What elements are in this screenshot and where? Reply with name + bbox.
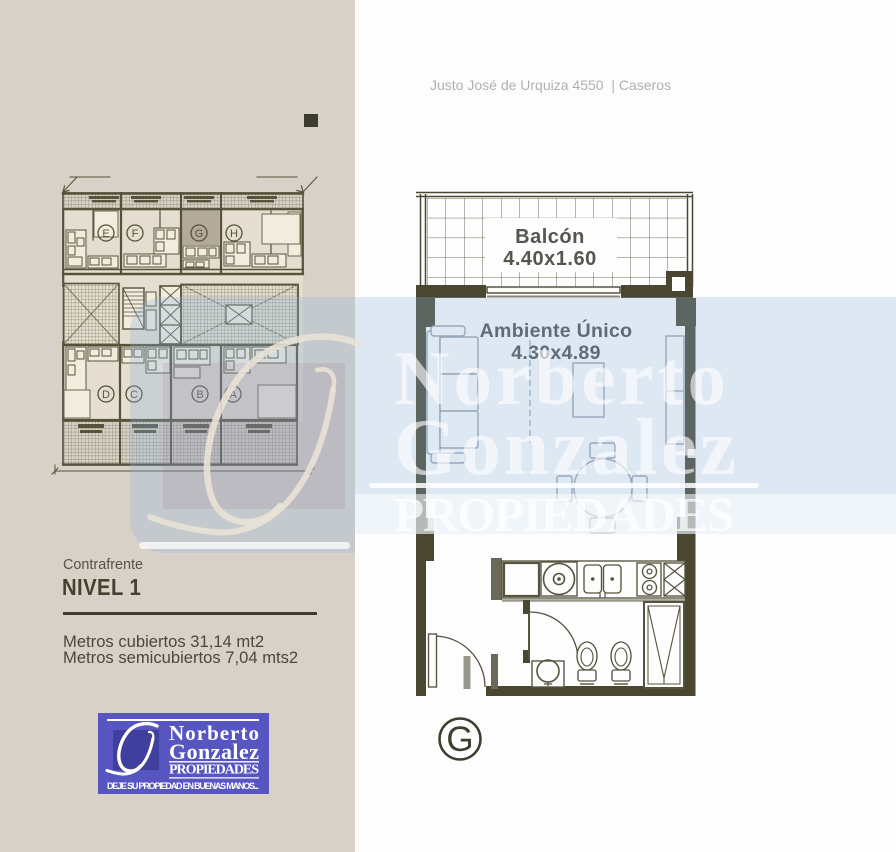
svg-text:DEJE SU PROPIEDAD EN BUENAS MA: DEJE SU PROPIEDAD EN BUENAS MANOS... <box>107 781 259 791</box>
svg-text:Gonzalez: Gonzalez <box>169 739 259 764</box>
svg-text:4.30x4.89: 4.30x4.89 <box>511 342 600 364</box>
svg-text:PROPIEDADES: PROPIEDADES <box>169 763 259 778</box>
svg-text:Ambiente Único: Ambiente Único <box>480 318 633 342</box>
svg-text:Balcón: Balcón <box>515 226 585 248</box>
svg-text:G: G <box>446 720 473 759</box>
svg-text:4.40x1.60: 4.40x1.60 <box>503 248 596 270</box>
